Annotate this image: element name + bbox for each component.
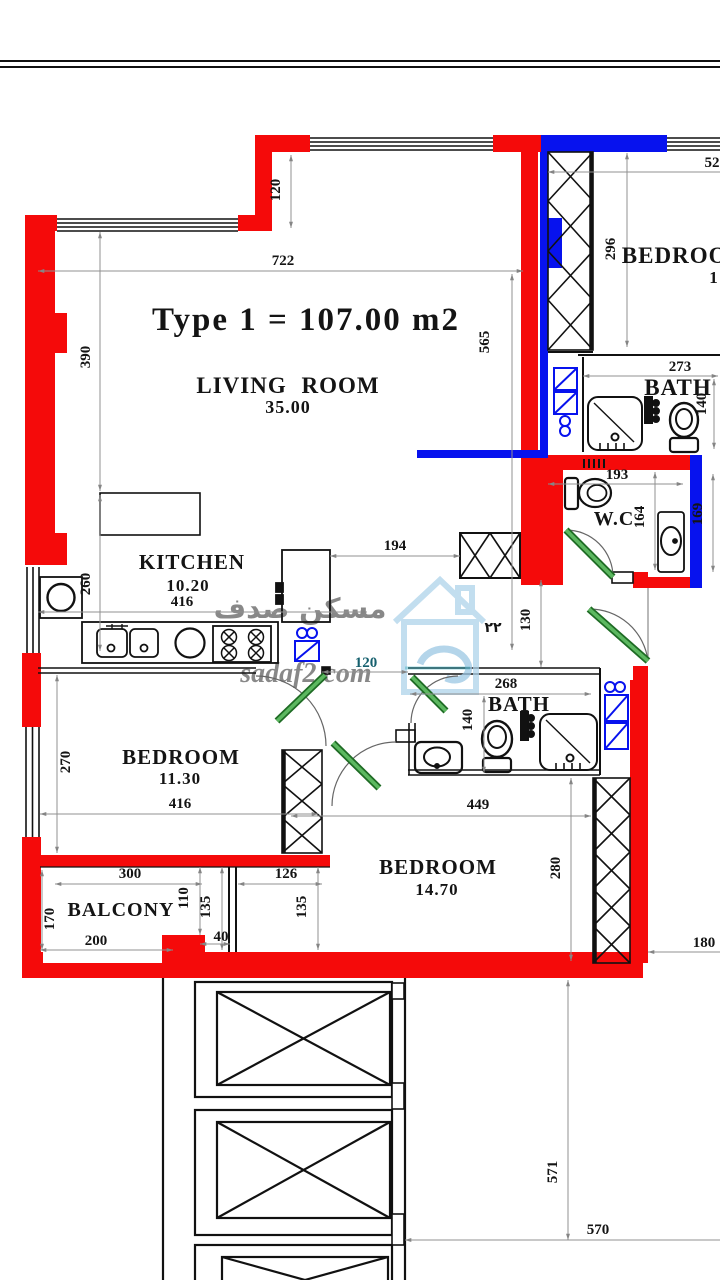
shaft-1 bbox=[195, 982, 392, 1097]
window-top-right bbox=[667, 138, 720, 150]
window-symbol-kitchen bbox=[295, 628, 319, 661]
label-bedroom1-area: 11.30 bbox=[159, 769, 201, 788]
dim-300: 300 bbox=[119, 866, 142, 882]
label-bath1: BATH bbox=[644, 375, 711, 400]
watermark-arabic: مسكن صدف bbox=[214, 592, 387, 625]
label-living-room: LIVING ROOM bbox=[196, 373, 379, 398]
kitchen-upper-cabinet bbox=[100, 493, 200, 535]
dim-110: 110 bbox=[176, 887, 192, 909]
label-bedroom2: BEDROOM bbox=[379, 855, 497, 879]
hatched-columns bbox=[282, 152, 630, 963]
bath2-fixtures bbox=[396, 712, 597, 773]
dim-135-b: 135 bbox=[294, 896, 310, 919]
stove-burners bbox=[222, 630, 264, 661]
shaft-2 bbox=[195, 1110, 392, 1235]
dim-140-bath2: 140 bbox=[460, 709, 476, 732]
dim-120-corridor: 120 bbox=[355, 655, 378, 671]
dim-170: 170 bbox=[42, 908, 58, 931]
dim-296: 296 bbox=[603, 237, 619, 260]
dim-200: 200 bbox=[85, 933, 108, 949]
dim-390: 390 bbox=[78, 346, 94, 369]
watermark-marks: ٢٢ bbox=[484, 620, 502, 636]
watermark-site: sadaf2.com bbox=[239, 658, 371, 689]
dim-571: 571 bbox=[545, 1161, 561, 1184]
dim-180: 180 bbox=[693, 935, 716, 951]
dim-164: 164 bbox=[632, 505, 648, 528]
label-living-area: 35.00 bbox=[265, 397, 311, 417]
watermark-house-icon bbox=[395, 580, 484, 692]
dim-193: 193 bbox=[606, 467, 629, 483]
dim-130: 130 bbox=[518, 609, 534, 632]
window-bedroom-west bbox=[24, 727, 41, 837]
window-symbol-bath1 bbox=[554, 368, 577, 436]
dim-135-a: 135 bbox=[198, 896, 214, 919]
dim-280: 280 bbox=[548, 857, 564, 880]
window-kitchen-west bbox=[25, 567, 41, 653]
duct-shaft-hall bbox=[460, 533, 520, 578]
dim-40: 40 bbox=[214, 929, 229, 945]
label-bedroom3: BEDROOM bbox=[622, 243, 720, 268]
floor-plan-drawing: ٢٢ مسكن صدف sadaf2.com bbox=[0, 0, 720, 1280]
bath1-fixtures bbox=[588, 397, 698, 452]
window-living-north bbox=[57, 219, 238, 231]
dim-570: 570 bbox=[587, 1222, 610, 1238]
dim-120-top: 120 bbox=[268, 179, 284, 202]
floor-plan-page: ٢٢ مسكن صدف sadaf2.com bbox=[0, 0, 720, 1280]
dim-416-bedroom: 416 bbox=[169, 796, 192, 812]
dim-169: 169 bbox=[690, 503, 706, 526]
sheet-frame-lines bbox=[0, 61, 720, 67]
window-top-left bbox=[310, 138, 493, 150]
hatch-column-east bbox=[593, 778, 630, 963]
label-kitchen-area: 10.20 bbox=[166, 576, 209, 595]
label-bedroom3-area: 1 bbox=[709, 268, 719, 287]
elevator-shafts bbox=[163, 978, 405, 1280]
wardrobe-bedroom1 bbox=[282, 750, 322, 853]
dim-449: 449 bbox=[467, 797, 490, 813]
label-balcony: BALCONY bbox=[67, 899, 174, 921]
label-bath2: BATH bbox=[488, 692, 550, 716]
dim-260: 260 bbox=[78, 573, 94, 596]
dim-416-kitchen: 416 bbox=[171, 594, 194, 610]
dim-722: 722 bbox=[272, 253, 295, 269]
label-bedroom2-area: 14.70 bbox=[415, 880, 458, 899]
shaft-door-recesses bbox=[392, 983, 404, 1245]
label-kitchen: KITCHEN bbox=[139, 550, 245, 574]
dim-270: 270 bbox=[58, 751, 74, 774]
dim-126: 126 bbox=[275, 866, 298, 882]
dim-268: 268 bbox=[495, 676, 518, 692]
dim-52: 52 bbox=[705, 155, 720, 171]
plan-title: Type 1 = 107.00 m2 bbox=[152, 302, 460, 338]
dim-273: 273 bbox=[669, 359, 692, 375]
dim-194: 194 bbox=[384, 538, 407, 554]
label-wc: W.C bbox=[594, 508, 635, 530]
window-symbol-bath2 bbox=[605, 682, 628, 749]
shaft-3 bbox=[195, 1245, 392, 1280]
label-bedroom1: BEDROOM bbox=[122, 745, 240, 769]
dim-565: 565 bbox=[477, 331, 493, 354]
